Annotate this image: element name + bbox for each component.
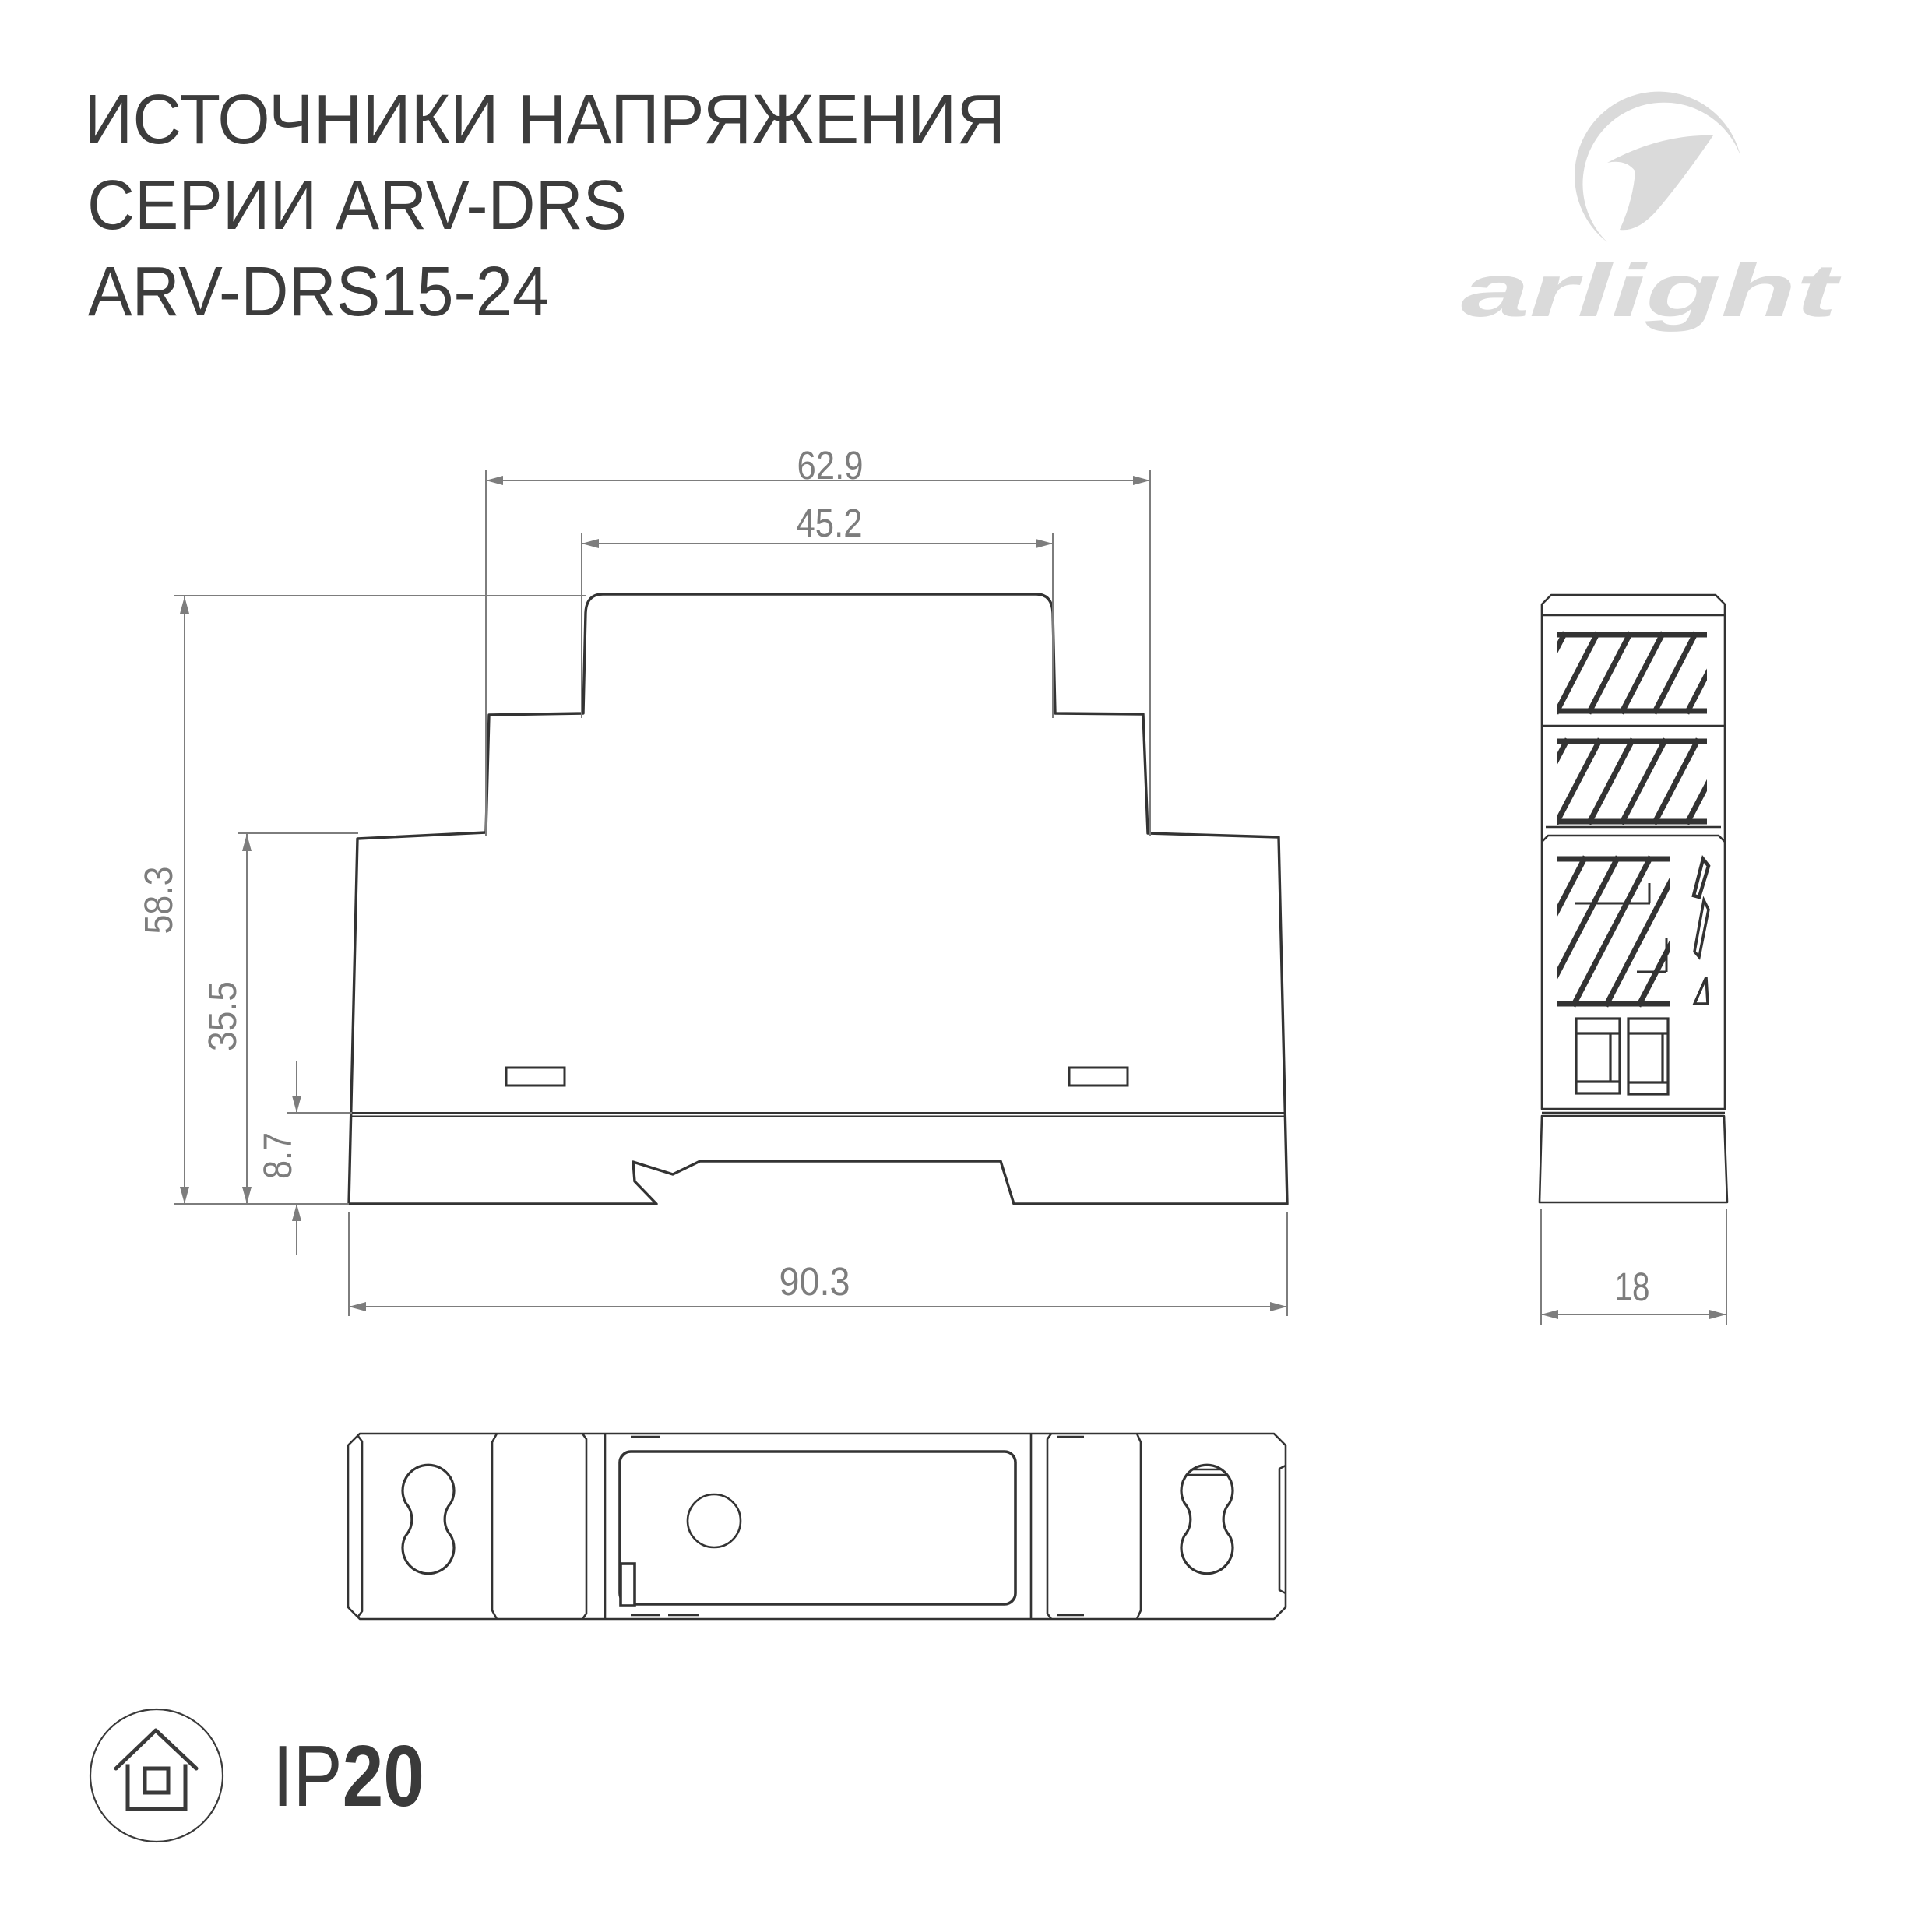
svg-text:90.3: 90.3: [779, 1259, 850, 1304]
svg-text:35.5: 35.5: [200, 981, 245, 1051]
svg-text:8.7: 8.7: [255, 1132, 300, 1179]
svg-text:IP20: IP20: [273, 1728, 424, 1825]
svg-text:ИСТОЧНИКИ НАПРЯЖЕНИЯ: ИСТОЧНИКИ НАПРЯЖЕНИЯ: [84, 81, 1005, 159]
svg-text:ARV-DRS15-24: ARV-DRS15-24: [88, 253, 549, 331]
svg-text:45.2: 45.2: [797, 501, 863, 545]
svg-text:58.3: 58.3: [136, 867, 181, 934]
svg-text:62.9: 62.9: [797, 443, 864, 487]
svg-text:arlight: arlight: [1461, 249, 1842, 333]
svg-text:СЕРИИ ARV-DRS: СЕРИИ ARV-DRS: [87, 167, 627, 245]
svg-text:18: 18: [1615, 1265, 1650, 1309]
